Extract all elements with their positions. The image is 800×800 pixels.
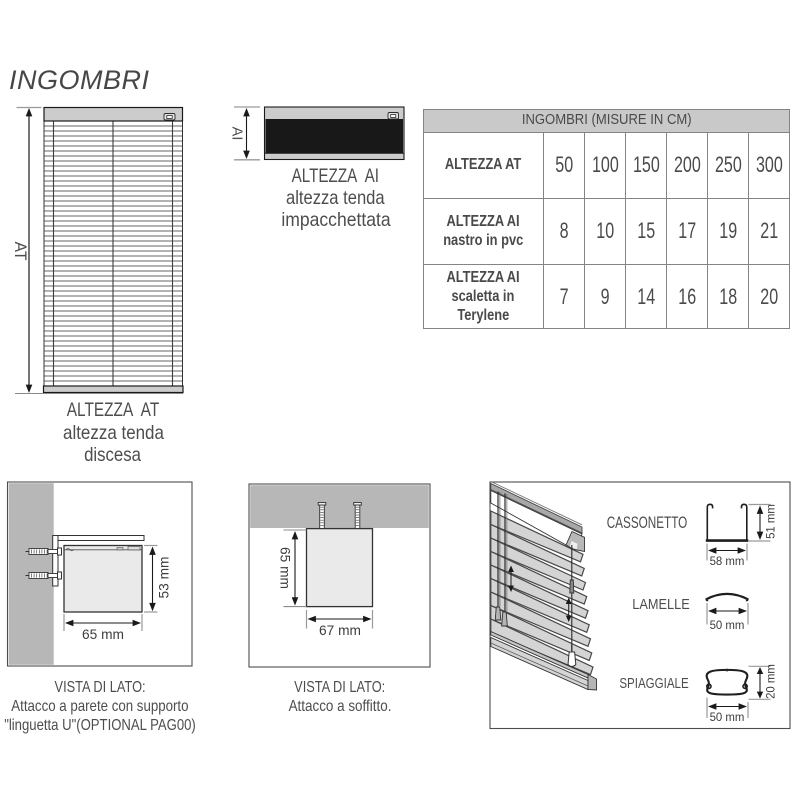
- svg-text:51 mm: 51 mm: [764, 504, 777, 539]
- svg-text:20 mm: 20 mm: [764, 664, 777, 699]
- svg-text:AT: AT: [11, 242, 29, 261]
- svg-text:53 mm: 53 mm: [155, 557, 171, 599]
- svg-text:65 mm: 65 mm: [277, 547, 293, 589]
- svg-text:AI: AI: [229, 127, 245, 141]
